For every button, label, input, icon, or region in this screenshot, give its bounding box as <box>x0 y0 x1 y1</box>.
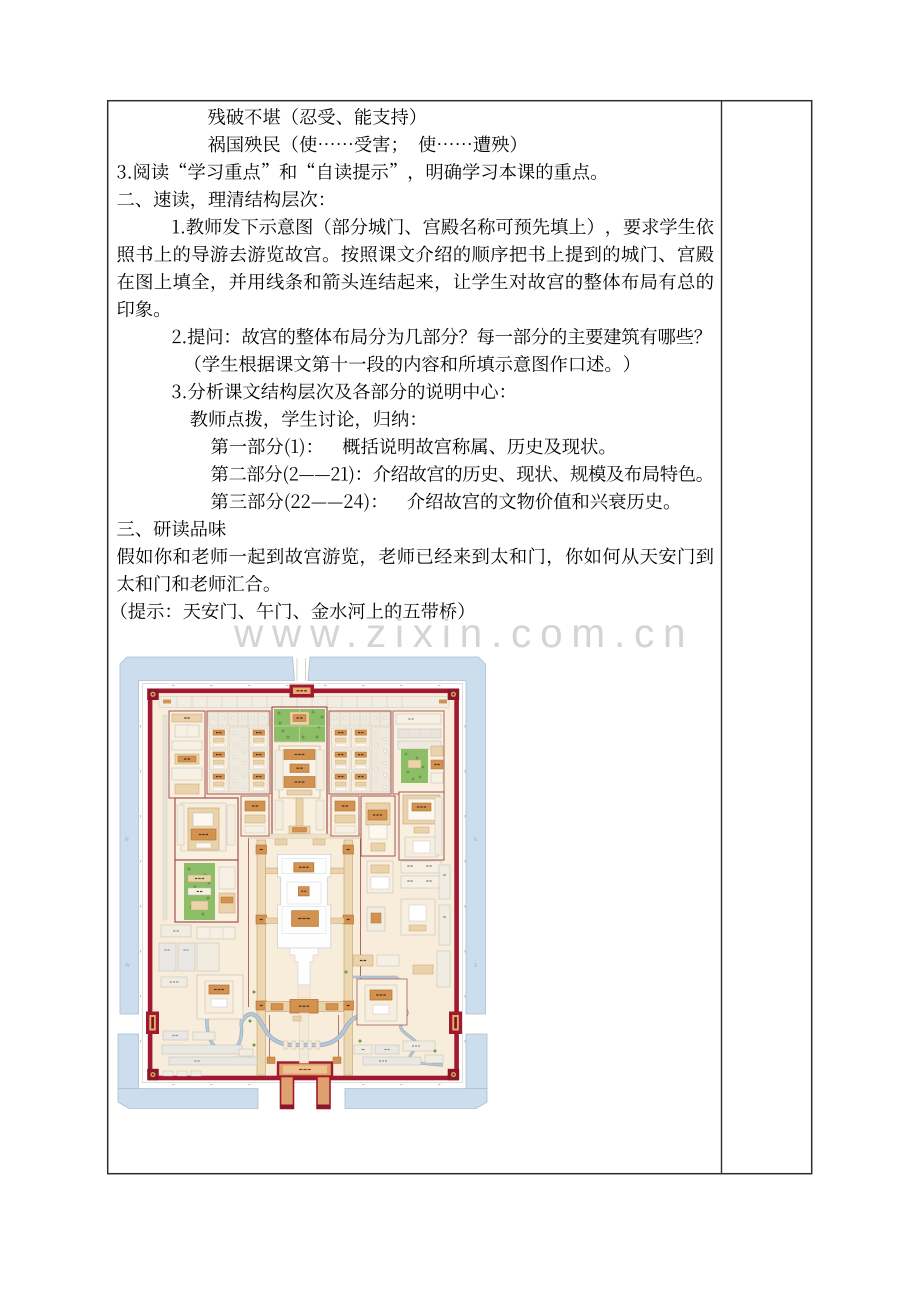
svg-text:W: W <box>125 963 130 969</box>
svg-text:N: N <box>125 837 129 843</box>
